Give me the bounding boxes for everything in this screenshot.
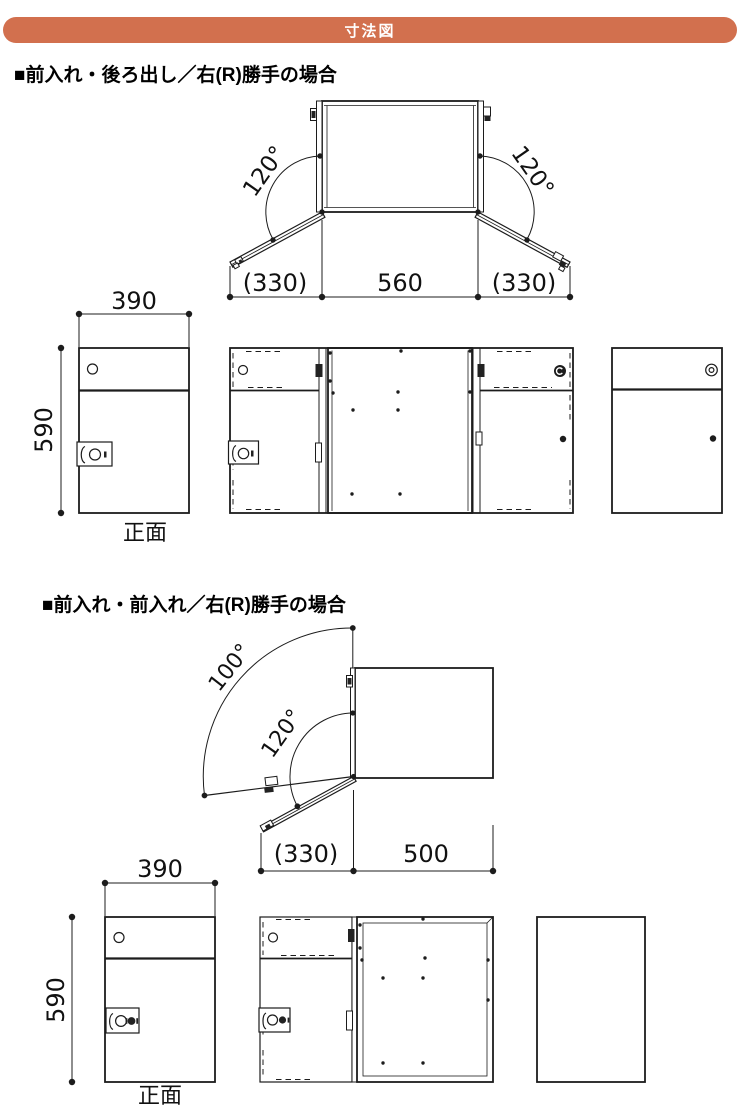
height-dim-label: 590 — [30, 407, 58, 453]
hinge-icon — [311, 109, 317, 121]
dim-label-330-left: (330) — [243, 269, 308, 297]
latch-keeper-icon — [263, 776, 279, 793]
dim-label-560: 560 — [377, 269, 423, 297]
angle-label-120: 120° — [257, 705, 308, 763]
hinge-icon — [478, 364, 485, 377]
lock-detail — [229, 441, 259, 464]
s1-view-front: 390 590 正面 — [30, 287, 192, 546]
knob-dot — [710, 435, 716, 441]
s2-front-views: 390 590 正面 — [42, 855, 645, 1109]
latch-plate — [316, 443, 322, 462]
hinge-icon — [348, 929, 355, 942]
dim-label-330: (330) — [274, 840, 339, 868]
hinge-icon — [347, 676, 353, 688]
hinge-icon — [316, 364, 323, 377]
s2-view-open — [259, 917, 493, 1082]
knob-dot — [560, 436, 566, 442]
s1-view-unfolded — [229, 348, 574, 513]
dim-label-500: 500 — [403, 840, 449, 868]
latch-plate — [347, 1011, 353, 1030]
page: 寸法図 ■前入れ・後ろ出し／右(R)勝手の場合 ■前入れ・前入れ／右(R)勝手の… — [0, 0, 740, 1111]
door-open-right — [475, 212, 570, 272]
s1-top-view: 120° 120° (330) 560 (330) — [227, 101, 573, 300]
lock-detail — [106, 1008, 139, 1033]
height-dim-label: 590 — [42, 977, 70, 1023]
box-body-top — [355, 668, 493, 778]
box-body-top — [322, 101, 478, 212]
front-view-caption: 正面 — [123, 521, 167, 546]
latch-icon — [484, 107, 491, 121]
front-view-caption: 正面 — [138, 1084, 182, 1109]
door-open-left — [230, 212, 325, 269]
angle-label-right: 120° — [506, 141, 559, 201]
angle-label-100: 100° — [204, 639, 256, 696]
lock-detail — [77, 442, 112, 466]
width-dim-label: 390 — [111, 287, 157, 315]
s2-top-view: 100° 120° (330) 500 — [202, 625, 497, 874]
latch-plate — [476, 432, 482, 445]
dim-label-330-right: (330) — [492, 269, 557, 297]
lock-detail — [259, 1008, 290, 1032]
width-dim-label: 390 — [137, 855, 183, 883]
s1-view-rear — [612, 348, 722, 513]
s1-front-views: 390 590 正面 — [30, 287, 722, 546]
cam-lock-icon — [554, 365, 566, 377]
dimension-drawings: 120° 120° (330) 560 (330) 390 590 — [0, 0, 740, 1111]
s2-view-rear — [537, 917, 645, 1082]
box-opening — [357, 917, 493, 1082]
s2-view-front: 390 590 正面 — [42, 855, 218, 1109]
